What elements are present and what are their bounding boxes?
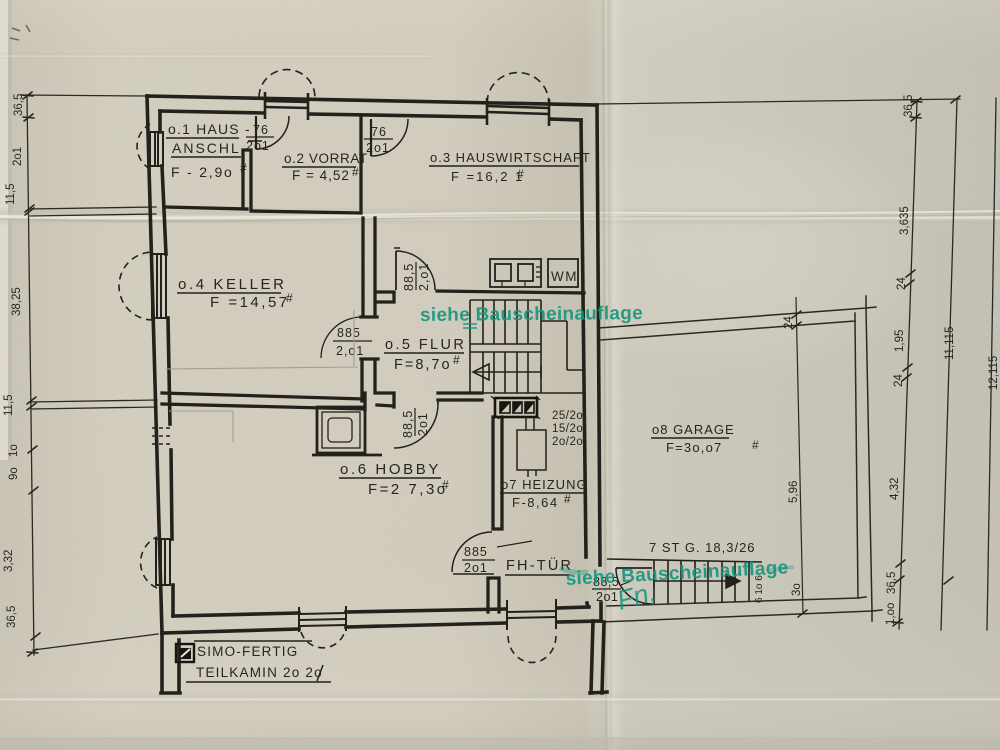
- svg-text:2o1: 2o1: [246, 139, 270, 153]
- svg-text:5,96: 5,96: [788, 481, 800, 503]
- svg-text:1,95: 1,95: [894, 330, 906, 352]
- svg-text:885: 885: [337, 326, 361, 340]
- svg-text:F - 2,9o: F - 2,9o: [171, 164, 234, 180]
- svg-text:2o1: 2o1: [12, 147, 24, 166]
- svg-text:F-8,64: F-8,64: [512, 495, 559, 510]
- svg-text:#: #: [442, 478, 451, 492]
- svg-text:o.2 VORRAT: o.2 VORRAT: [284, 151, 368, 166]
- svg-text:2o/2o: 2o/2o: [552, 436, 583, 448]
- svg-text:11,115: 11,115: [944, 327, 956, 360]
- svg-text:F =14,57: F =14,57: [210, 294, 290, 311]
- svg-text:F=8,7o: F=8,7o: [394, 357, 452, 373]
- svg-text:3o: 3o: [791, 583, 803, 596]
- svg-text:#: #: [240, 161, 248, 175]
- svg-text:2o1: 2o1: [366, 141, 390, 155]
- svg-text:88,5: 88,5: [402, 263, 416, 291]
- svg-text:TEILKAMIN 2o 2o: TEILKAMIN 2o 2o: [196, 665, 323, 680]
- svg-text:36,5: 36,5: [6, 606, 18, 628]
- svg-text:11,5: 11,5: [5, 183, 17, 205]
- svg-text:24: 24: [783, 316, 795, 329]
- svg-text:24: 24: [896, 277, 908, 290]
- svg-text:38,25: 38,25: [11, 287, 23, 316]
- svg-text:885: 885: [464, 545, 488, 559]
- svg-text:12,115: 12,115: [988, 356, 1000, 390]
- svg-text:F =16,2 1: F =16,2 1: [451, 169, 524, 184]
- svg-text:#: #: [517, 167, 525, 181]
- svg-text:88,5: 88,5: [401, 410, 415, 438]
- svg-text:#: #: [286, 291, 295, 305]
- svg-text:7 ST G. 18,3/26: 7 ST G. 18,3/26: [649, 540, 756, 555]
- svg-text:SIMO-FERTIG: SIMO-FERTIG: [197, 644, 298, 659]
- svg-text:siehe Bauscheinauflage: siehe Bauscheinauflage: [420, 303, 643, 326]
- svg-text:ANSCHL: ANSCHL: [172, 140, 241, 156]
- svg-text:15/2o: 15/2o: [552, 423, 583, 435]
- svg-text:76: 76: [371, 125, 387, 139]
- svg-text:o.3 HAUSWIRTSCHAFT: o.3 HAUSWIRTSCHAFT: [430, 150, 591, 165]
- svg-text:WM: WM: [551, 269, 578, 284]
- svg-text:2o1: 2o1: [464, 561, 488, 575]
- svg-text:9o: 9o: [8, 467, 20, 480]
- svg-text:o.4 KELLER: o.4 KELLER: [178, 276, 287, 293]
- svg-text:o.1 HAUS -: o.1 HAUS -: [168, 121, 251, 137]
- svg-text:76: 76: [253, 123, 269, 137]
- svg-text:#: #: [453, 353, 462, 367]
- svg-text:24: 24: [893, 374, 905, 387]
- svg-text:#: #: [752, 438, 760, 452]
- svg-text:F=2 7,3o: F=2 7,3o: [368, 481, 448, 498]
- svg-text:4,32: 4,32: [889, 478, 901, 500]
- svg-text:F=3o,o7: F=3o,o7: [666, 440, 722, 455]
- svg-text:o7 HEIZUNG: o7 HEIZUNG: [501, 477, 588, 492]
- svg-text:3,32: 3,32: [3, 550, 15, 572]
- svg-text:#: #: [564, 492, 572, 506]
- svg-text:1o: 1o: [8, 444, 20, 457]
- svg-text:11,5: 11,5: [3, 394, 15, 416]
- svg-text:1,oo: 1,oo: [885, 603, 897, 625]
- svg-text:36,5: 36,5: [13, 94, 25, 116]
- svg-text:36,5: 36,5: [886, 572, 898, 594]
- svg-text:o.6 HOBBY: o.6 HOBBY: [340, 461, 441, 478]
- svg-text:3,635: 3,635: [899, 206, 911, 235]
- svg-text:o8 GARAGE: o8 GARAGE: [652, 422, 735, 437]
- svg-text:F = 4,52: F = 4,52: [292, 168, 350, 183]
- svg-text:25/2o: 25/2o: [552, 410, 583, 422]
- svg-text:2,o1: 2,o1: [336, 344, 364, 358]
- svg-text:o.5 FLUR: o.5 FLUR: [385, 337, 466, 353]
- svg-text:2,o1: 2,o1: [417, 263, 431, 291]
- svg-text:36,5: 36,5: [903, 95, 915, 117]
- svg-text:2o1: 2o1: [416, 412, 430, 436]
